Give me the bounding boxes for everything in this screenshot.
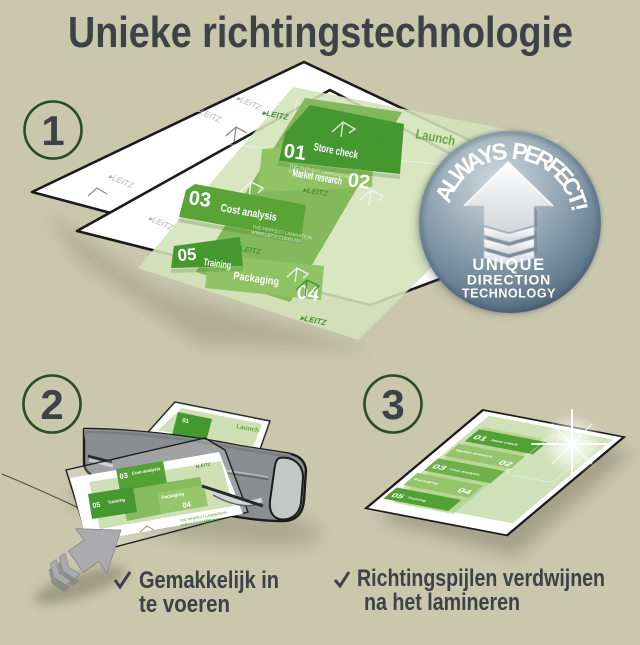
svg-text:05: 05 (177, 245, 197, 265)
svg-text:na het lamineren: na het lamineren (364, 589, 520, 616)
svg-text:TECHNOLOGY: TECHNOLOGY (462, 287, 556, 301)
svg-text:03: 03 (119, 471, 129, 481)
svg-text:te voeren: te voeren (139, 591, 230, 618)
svg-text:DIRECTION: DIRECTION (467, 272, 551, 288)
svg-text:3: 3 (381, 381, 404, 428)
svg-text:Unieke richtingstechnologie: Unieke richtingstechnologie (68, 8, 573, 57)
svg-text:05: 05 (92, 502, 101, 510)
svg-text:2: 2 (40, 381, 63, 428)
svg-text:01: 01 (282, 140, 307, 165)
svg-text:Richtingspijlen verdwijnen: Richtingspijlen verdwijnen (357, 565, 605, 592)
svg-text:1: 1 (41, 107, 64, 154)
svg-text:Gemakkelijk in: Gemakkelijk in (139, 567, 279, 594)
svg-text:03: 03 (187, 187, 212, 212)
